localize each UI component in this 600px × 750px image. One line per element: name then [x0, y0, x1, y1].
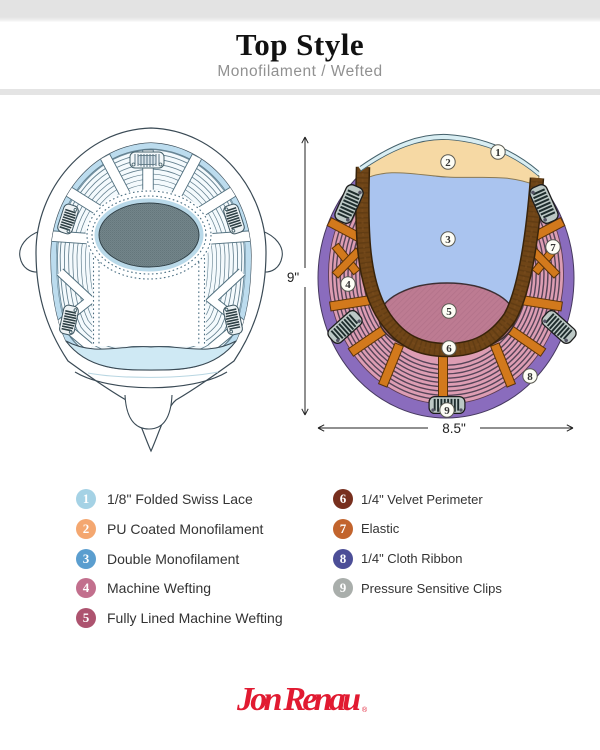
svg-text:1: 1	[495, 147, 501, 159]
svg-text:5: 5	[446, 306, 452, 318]
svg-text:9": 9"	[287, 270, 300, 285]
svg-text:Jon Renau: Jon Renau	[236, 681, 361, 718]
svg-text:6: 6	[446, 343, 452, 355]
svg-text:8.5": 8.5"	[442, 421, 466, 436]
svg-text:7: 7	[550, 242, 556, 254]
svg-text:8: 8	[527, 371, 533, 383]
svg-text:®: ®	[362, 706, 368, 714]
svg-text:2: 2	[445, 157, 451, 169]
svg-text:9: 9	[444, 405, 450, 417]
svg-text:3: 3	[445, 234, 451, 246]
svg-text:4: 4	[345, 279, 351, 291]
